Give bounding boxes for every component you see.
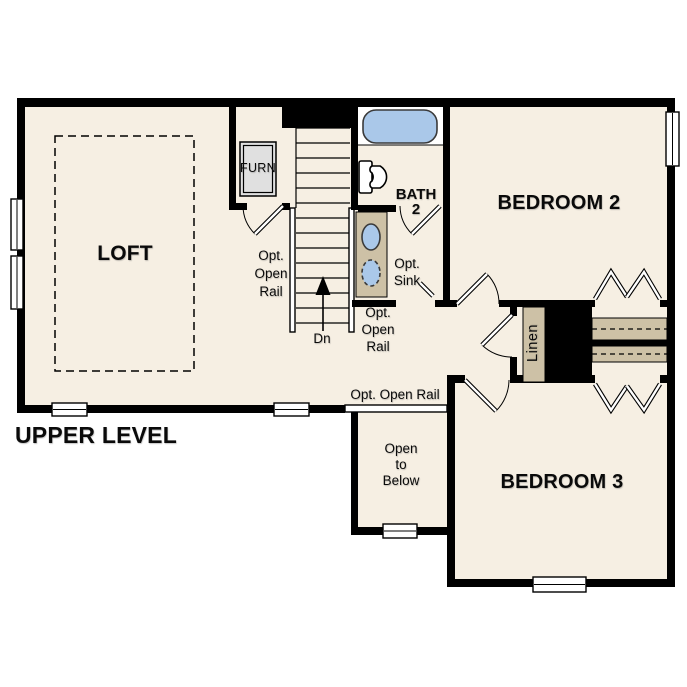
- stairs-down-label: Dn: [313, 330, 330, 348]
- open-rail-bar: [345, 405, 447, 412]
- window-bedroom3-bottom: [533, 577, 586, 592]
- window-bedroom2-right: [666, 112, 679, 166]
- furnace-label: FURN: [240, 161, 276, 175]
- linen-label: Linen: [525, 324, 541, 362]
- opt-sink-label: Opt. Sink: [394, 255, 420, 289]
- stair-rail-right: [349, 208, 354, 332]
- bathtub-icon: [363, 110, 437, 143]
- plan-title: UPPER LEVEL: [15, 422, 177, 449]
- floorplan-drawing: [0, 0, 687, 687]
- window-loft-left-2: [11, 256, 23, 309]
- window-open-below-bottom: [383, 524, 417, 538]
- window-loft-bottom-1: [52, 403, 87, 416]
- loft-label: LOFT: [97, 242, 153, 266]
- open-to-below-label: Open to Below: [383, 441, 420, 489]
- opt-open-rail-left-label: Opt. Open Rail: [254, 247, 287, 301]
- opt-open-rail-right-label: Opt. Open Rail: [361, 304, 394, 355]
- bedroom2-label: BEDROOM 2: [498, 192, 621, 215]
- window-loft-bottom-2: [274, 403, 309, 416]
- bath-label: BATH 2: [396, 187, 437, 217]
- stair-rail-left: [290, 208, 295, 332]
- optional-sink-icon: [362, 260, 380, 286]
- floorplan-page: LOFT FURN BATH 2 BEDROOM 2 BEDROOM 3 Lin…: [0, 0, 687, 687]
- window-loft-left-1: [11, 199, 23, 250]
- sink-icon: [362, 224, 380, 250]
- bedroom3-label: BEDROOM 3: [501, 471, 624, 494]
- opt-open-rail-bottom-label: Opt. Open Rail: [350, 386, 439, 404]
